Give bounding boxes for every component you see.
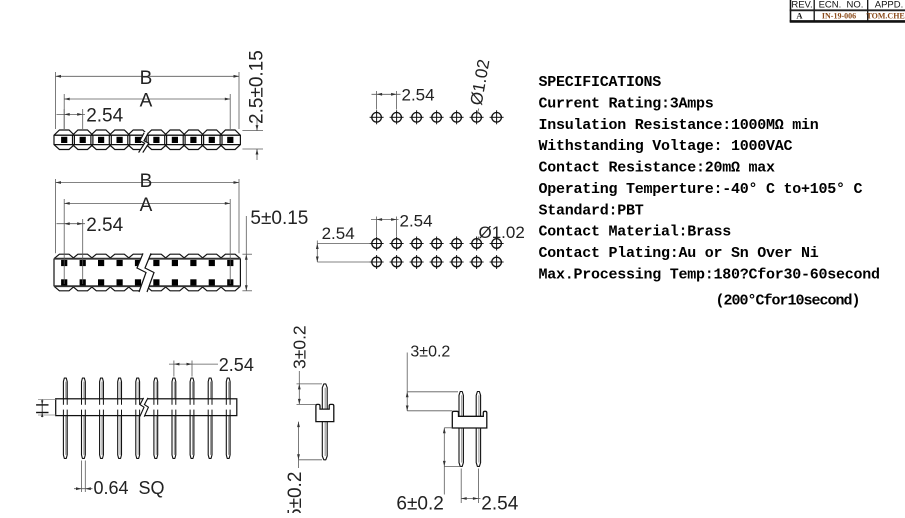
svg-text:A: A xyxy=(796,10,803,20)
svg-text:APPD.: APPD. xyxy=(875,0,904,10)
svg-text:A: A xyxy=(140,195,153,216)
svg-text:3±0.2: 3±0.2 xyxy=(410,344,450,361)
svg-text:5±0.15: 5±0.15 xyxy=(250,208,308,229)
svg-text:0.64 SQ: 0.64 SQ xyxy=(94,478,165,498)
svg-text:IN-19-006: IN-19-006 xyxy=(822,11,856,20)
svg-text:2.54: 2.54 xyxy=(481,494,518,514)
svg-text:Contact Resistance:20mΩ max: Contact Resistance:20mΩ max xyxy=(539,160,776,177)
svg-text:(200°Cfor10second): (200°Cfor10second) xyxy=(716,293,860,310)
svg-text:Standard:PBT: Standard:PBT xyxy=(539,202,644,219)
svg-text:ECN. NO.: ECN. NO. xyxy=(819,0,864,10)
svg-text:2.54: 2.54 xyxy=(86,215,123,236)
svg-text:Contact Material:Brass: Contact Material:Brass xyxy=(539,224,732,241)
svg-text:2.5±0.15: 2.5±0.15 xyxy=(247,50,268,124)
svg-text:2.54: 2.54 xyxy=(402,85,435,104)
svg-text:SPECIFICATIONS: SPECIFICATIONS xyxy=(539,74,662,91)
svg-text:Ø1.02: Ø1.02 xyxy=(479,223,525,242)
svg-text:3±0.2: 3±0.2 xyxy=(289,325,309,369)
svg-text:6±0.2: 6±0.2 xyxy=(396,494,443,514)
svg-text:2.54: 2.54 xyxy=(400,211,433,230)
svg-text:B: B xyxy=(140,171,153,192)
svg-text:Contact Plating:Au or Sn Over: Contact Plating:Au or Sn Over Ni xyxy=(539,245,819,262)
svg-text:B: B xyxy=(140,68,153,89)
svg-text:Operating Temperture:-40° C to: Operating Temperture:-40° C to+105° C xyxy=(539,181,863,198)
svg-text:TOM.CHEN: TOM.CHEN xyxy=(866,11,905,20)
svg-text:A: A xyxy=(140,91,153,112)
svg-text:2.54: 2.54 xyxy=(86,106,123,127)
svg-text:Insulation Resistance:1000MΩ m: Insulation Resistance:1000MΩ min xyxy=(539,117,819,134)
svg-text:Withstanding Voltage: 1000VAC: Withstanding Voltage: 1000VAC xyxy=(539,138,793,155)
svg-text:2.54: 2.54 xyxy=(322,224,355,243)
svg-text:Current Rating:3Amps: Current Rating:3Amps xyxy=(539,96,714,113)
svg-text:Max.Processing Temp:180?Cfor30: Max.Processing Temp:180?Cfor30-60second xyxy=(539,266,880,283)
svg-text:5±0.2: 5±0.2 xyxy=(285,472,306,513)
svg-text:REV.: REV. xyxy=(791,0,812,10)
svg-text:2.54: 2.54 xyxy=(219,355,254,375)
